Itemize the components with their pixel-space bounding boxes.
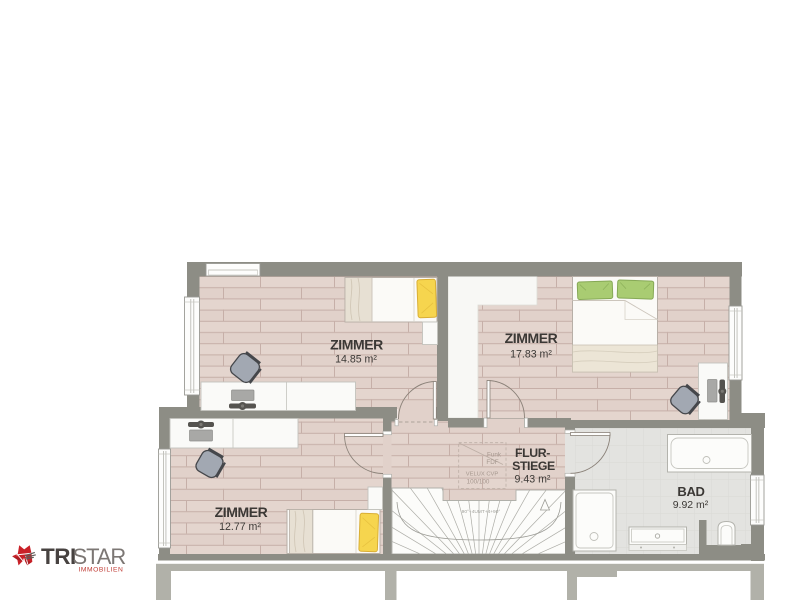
- svg-text:BAD: BAD: [677, 484, 704, 499]
- svg-text:12.77 m²: 12.77 m²: [219, 521, 261, 533]
- svg-text:STAR: STAR: [73, 544, 126, 569]
- svg-text:FLUR-: FLUR-: [515, 446, 550, 460]
- svg-text:TRI: TRI: [41, 544, 76, 569]
- svg-text:9.92 m²: 9.92 m²: [673, 499, 709, 511]
- svg-text:Funk: Funk: [487, 452, 502, 459]
- svg-text:ZIMMER: ZIMMER: [330, 337, 383, 353]
- svg-text:90°+4UMT+4+90°: 90°+4UMT+4+90°: [462, 509, 501, 515]
- svg-text:IMMOBILIEN: IMMOBILIEN: [79, 567, 124, 574]
- svg-text:9.43 m²: 9.43 m²: [515, 474, 551, 486]
- svg-text:17.83 m²: 17.83 m²: [510, 349, 552, 361]
- svg-text:ZIMMER: ZIMMER: [215, 504, 268, 520]
- svg-text:STIEGE: STIEGE: [512, 459, 555, 473]
- svg-text:FDF: FDF: [486, 459, 498, 466]
- svg-text:100/100: 100/100: [467, 479, 490, 486]
- svg-text:ZIMMER: ZIMMER: [505, 330, 558, 346]
- svg-text:VELUX CVP: VELUX CVP: [466, 472, 499, 478]
- svg-text:14.85 m²: 14.85 m²: [335, 354, 377, 366]
